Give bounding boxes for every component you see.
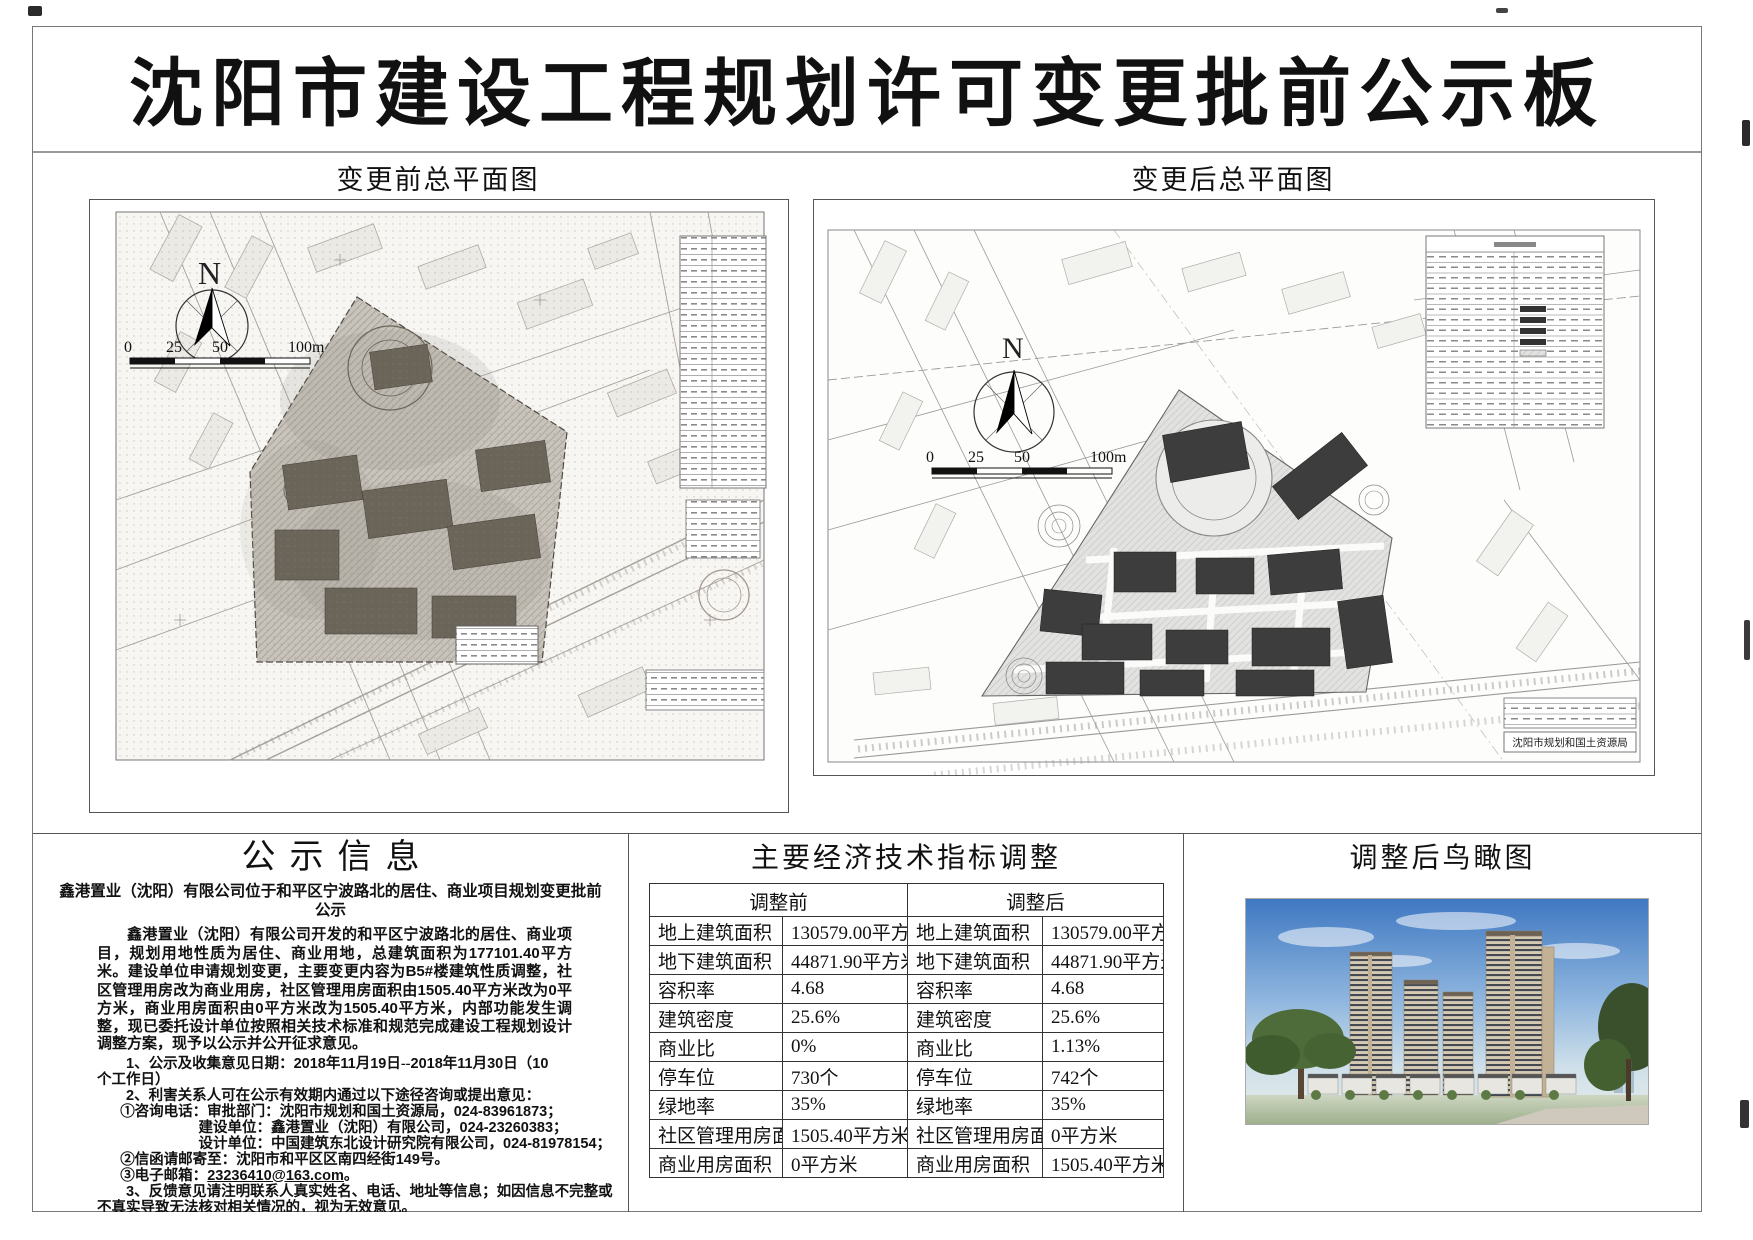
indicator-row: 地下建筑面积44871.90平方米地下建筑面积44871.90平方米	[650, 946, 1164, 975]
scan-artifact	[1744, 620, 1750, 660]
indicator-row: 商业比0%商业比1.13%	[650, 1033, 1164, 1062]
indicators-title: 主要经济技术指标调整	[629, 842, 1183, 876]
indicator-label: 停车位	[908, 1062, 1043, 1091]
indicator-value: 0平方米	[783, 1149, 908, 1178]
plan-before-panel: N 0 25 50 100m	[89, 199, 789, 813]
plan-after-title: 变更后总平面图	[813, 165, 1653, 195]
indicator-label: 商业比	[908, 1033, 1043, 1062]
indicator-value: 0平方米	[1043, 1120, 1164, 1149]
indicator-value: 130579.00平方米	[1043, 917, 1164, 946]
svg-text:25: 25	[166, 339, 182, 356]
indicator-label: 建筑密度	[650, 1004, 783, 1033]
indicator-label: 商业用房面积	[650, 1149, 783, 1178]
indicator-value: 4.68	[1043, 975, 1164, 1004]
notice-item: 2、利害关系人可在公示有效期内通过以下途径咨询或提出意见：	[97, 1088, 618, 1104]
svg-text:N: N	[1002, 332, 1024, 365]
svg-text:50: 50	[1014, 449, 1030, 466]
indicator-row: 停车位730个停车位742个	[650, 1062, 1164, 1091]
notice-item: ③电子邮箱：23236410@163.com。	[97, 1168, 618, 1184]
note-box	[456, 626, 538, 664]
col-after-header: 调整后	[908, 884, 1164, 917]
indicators-table: 调整前 调整后 地上建筑面积130579.00平方米地上建筑面积130579.0…	[649, 883, 1164, 1178]
indicator-label: 商业用房面积	[908, 1149, 1043, 1178]
indicator-label: 容积率	[650, 975, 783, 1004]
notice-item: 3、反馈意见请注明联系人真实姓名、电话、地址等信息；如因信息不完整或不真实导致无…	[97, 1184, 618, 1213]
title-divider	[33, 151, 1701, 153]
indicator-value: 0%	[783, 1033, 908, 1062]
indicator-row: 社区管理用房面积1505.40平方米社区管理用房面积0平方米	[650, 1120, 1164, 1149]
plan-after-panel: 沈阳市规划和国土资源局 N 0 25 50 100m	[813, 199, 1655, 776]
svg-text:100m: 100m	[1090, 449, 1127, 466]
notice-item: 设计单位：中国建筑东北设计研究院有限公司，024-81978154；	[97, 1136, 618, 1152]
indicator-value: 25.6%	[1043, 1004, 1164, 1033]
notice-board: 沈阳市建设工程规划许可变更批前公示板 变更前总平面图 变更后总平面图	[32, 26, 1702, 1212]
legend-table	[680, 236, 766, 488]
site-plan-before-drawing: N 0 25 50 100m	[90, 200, 788, 812]
indicator-label: 商业比	[650, 1033, 783, 1062]
indicator-row: 商业用房面积0平方米商业用房面积1505.40平方米	[650, 1149, 1164, 1178]
notice-item: 建设单位：鑫港置业（沈阳）有限公司，024-23260383；	[97, 1120, 618, 1136]
title-block	[646, 670, 764, 710]
bottom-section: 公示信息 鑫港置业（沈阳）有限公司位于和平区宁波路北的居住、商业项目规划变更批前…	[33, 833, 1701, 1212]
indicator-value: 4.68	[783, 975, 908, 1004]
indicators-column: 主要经济技术指标调整 调整前 调整后 地上建筑面积130579.00平方米地上建…	[628, 834, 1183, 1212]
indicator-label: 容积率	[908, 975, 1043, 1004]
indicator-label: 建筑密度	[908, 1004, 1043, 1033]
title-block	[1504, 698, 1636, 728]
svg-text:0: 0	[926, 449, 934, 466]
site-plan-after-drawing: 沈阳市规划和国土资源局 N 0 25 50 100m	[814, 200, 1654, 775]
indicator-value: 44871.90平方米	[783, 946, 908, 975]
svg-text:100m: 100m	[288, 339, 325, 356]
svg-text:N: N	[198, 255, 221, 291]
indicator-label: 绿地率	[650, 1091, 783, 1120]
indicator-row: 建筑密度25.6%建筑密度25.6%	[650, 1004, 1164, 1033]
indicator-label: 地下建筑面积	[650, 946, 783, 975]
indicator-value: 25.6%	[783, 1004, 908, 1033]
indicator-label: 地上建筑面积	[650, 917, 783, 946]
page-title: 沈阳市建设工程规划许可变更批前公示板	[33, 55, 1701, 135]
indicator-row: 容积率4.68容积率4.68	[650, 975, 1164, 1004]
svg-text:沈阳市规划和国土资源局: 沈阳市规划和国土资源局	[1512, 736, 1628, 749]
indicator-value: 742个	[1043, 1062, 1164, 1091]
svg-text:0: 0	[124, 339, 132, 356]
notice-column: 公示信息 鑫港置业（沈阳）有限公司位于和平区宁波路北的居住、商业项目规划变更批前…	[33, 834, 628, 1212]
indicators-table-body: 地上建筑面积130579.00平方米地上建筑面积130579.00平方米地下建筑…	[650, 917, 1164, 1178]
scan-artifact	[28, 6, 42, 16]
aerial-title: 调整后鸟瞰图	[1184, 842, 1701, 876]
notice-items: 1、公示及收集意见日期：2018年11月19日--2018年11月30日（10个…	[97, 1056, 618, 1213]
agency-stamp: 沈阳市规划和国土资源局	[1504, 732, 1636, 752]
notice-item: ①咨询电话：审批部门：沈阳市规划和国土资源局，024-83961873；	[97, 1104, 618, 1120]
aerial-photo	[1245, 898, 1649, 1125]
indicator-label: 绿地率	[908, 1091, 1043, 1120]
indicator-label: 社区管理用房面积	[650, 1120, 783, 1149]
notice-paragraph: 鑫港置业（沈阳）有限公司开发的和平区宁波路北的居住、商业项目，规划用地性质为居住…	[97, 927, 572, 1054]
indicator-value: 730个	[783, 1062, 908, 1091]
notice-subtitle: 鑫港置业（沈阳）有限公司位于和平区宁波路北的居住、商业项目规划变更批前公示	[59, 882, 602, 920]
aerial-column: 调整后鸟瞰图	[1183, 834, 1701, 1212]
notice-item: 1、公示及收集意见日期：2018年11月19日--2018年11月30日（10个…	[97, 1056, 618, 1088]
notice-item: ②信函请邮寄至：沈阳市和平区区南四经街149号。	[97, 1152, 618, 1168]
indicator-label: 停车位	[650, 1062, 783, 1091]
svg-text:25: 25	[968, 449, 984, 466]
indicator-row: 地上建筑面积130579.00平方米地上建筑面积130579.00平方米	[650, 917, 1164, 946]
notice-title: 公示信息	[33, 840, 628, 876]
indicator-value: 35%	[783, 1091, 908, 1120]
svg-text:50: 50	[212, 339, 228, 356]
indicator-label: 地下建筑面积	[908, 946, 1043, 975]
indicator-value: 130579.00平方米	[783, 917, 908, 946]
indicator-value: 1505.40平方米	[783, 1120, 908, 1149]
indicator-label: 地上建筑面积	[908, 917, 1043, 946]
scan-artifact	[1742, 120, 1750, 146]
scan-artifact	[1740, 1100, 1749, 1128]
plan-before-title: 变更前总平面图	[89, 165, 787, 195]
legend-table	[1426, 236, 1604, 428]
indicator-value: 1.13%	[1043, 1033, 1164, 1062]
scan-artifact	[1496, 8, 1508, 13]
index-table	[686, 500, 760, 558]
indicator-value: 35%	[1043, 1091, 1164, 1120]
indicator-row: 绿地率35%绿地率35%	[650, 1091, 1164, 1120]
indicator-value: 1505.40平方米	[1043, 1149, 1164, 1178]
col-before-header: 调整前	[650, 884, 908, 917]
indicator-label: 社区管理用房面积	[908, 1120, 1043, 1149]
indicator-value: 44871.90平方米	[1043, 946, 1164, 975]
